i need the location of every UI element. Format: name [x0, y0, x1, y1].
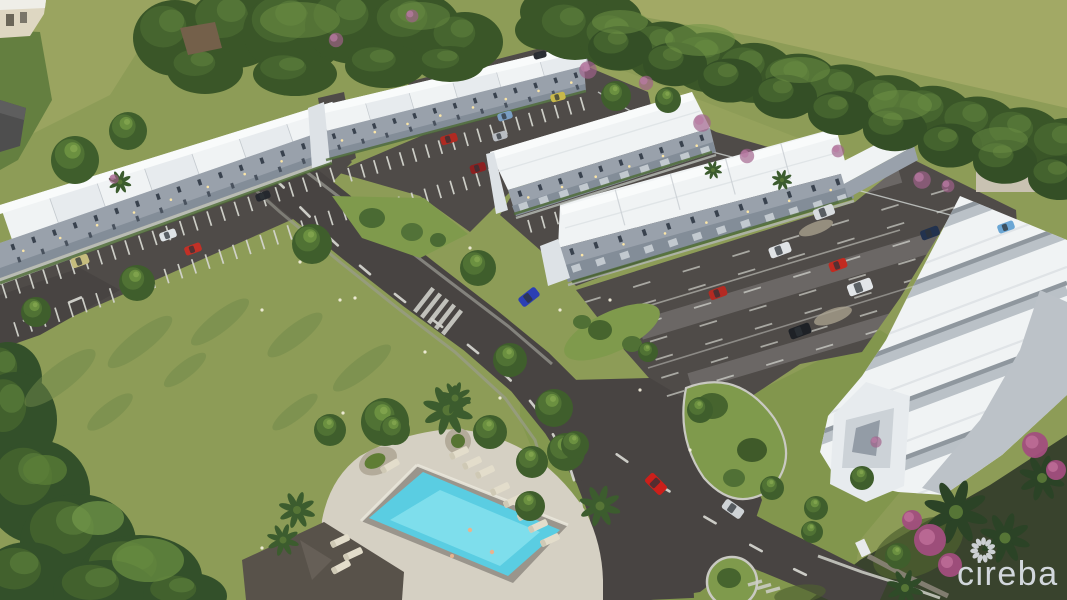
svg-text:cireba: cireba [957, 555, 1059, 593]
